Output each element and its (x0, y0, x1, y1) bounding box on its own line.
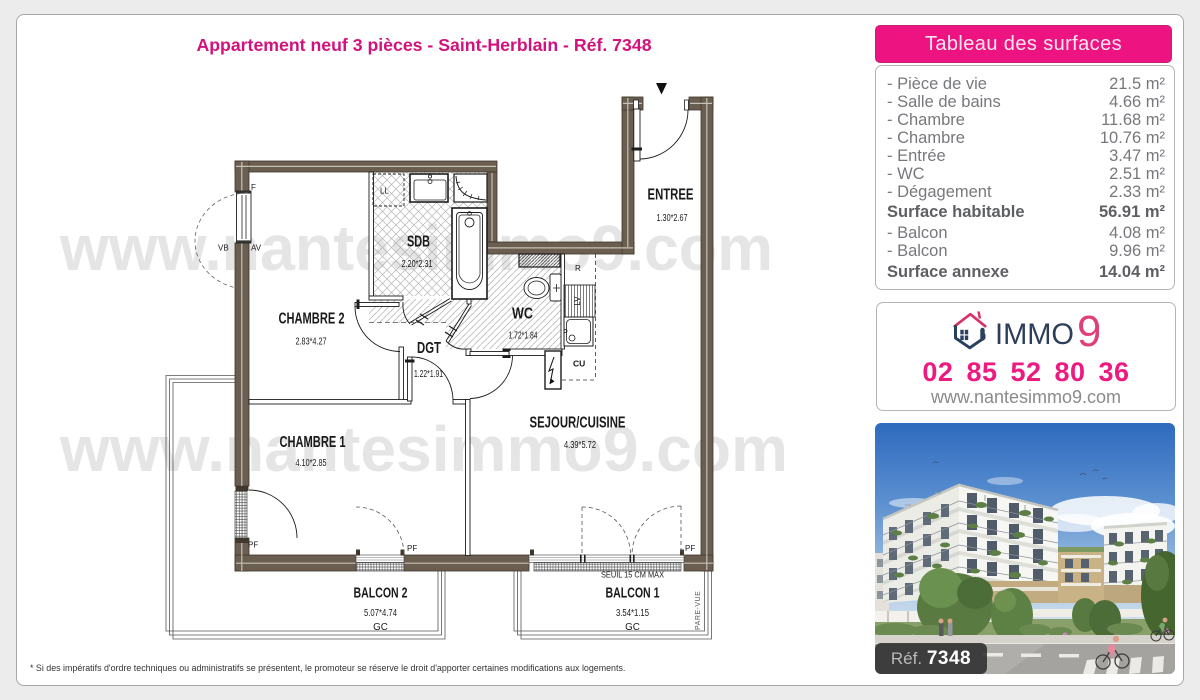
svg-text:CHAMBRE 2: CHAMBRE 2 (279, 311, 345, 328)
svg-text:SDB: SDB (407, 234, 430, 251)
svg-text:4.39*5.72: 4.39*5.72 (564, 440, 596, 451)
svg-text:2.20*2.31: 2.20*2.31 (402, 259, 433, 270)
svg-text:WC: WC (512, 306, 533, 323)
svg-text:PF: PF (407, 544, 417, 553)
svg-text:3.54*1.15: 3.54*1.15 (616, 608, 649, 619)
svg-text:AV: AV (251, 244, 262, 253)
svg-text:BALCON 1: BALCON 1 (606, 586, 660, 602)
svg-text:1.30*2.67: 1.30*2.67 (657, 213, 688, 224)
svg-text:PARE-VUE: PARE-VUE (695, 591, 702, 630)
svg-text:1.22*1.91: 1.22*1.91 (414, 369, 443, 380)
svg-text:SEJOUR/CUISINE: SEJOUR/CUISINE (530, 415, 626, 432)
svg-text:DGT: DGT (417, 340, 441, 357)
svg-text:BALCON 2: BALCON 2 (354, 586, 408, 602)
svg-text:R: R (575, 264, 581, 273)
svg-text:IMMO: IMMO (995, 318, 1074, 351)
svg-text:GC: GC (373, 622, 388, 633)
svg-text:SEUIL 15 CM MAX: SEUIL 15 CM MAX (601, 571, 665, 580)
svg-text:VB: VB (218, 244, 229, 253)
svg-text:CU: CU (573, 359, 585, 369)
svg-text:LL: LL (380, 187, 389, 196)
svg-text:ENTREE: ENTREE (648, 187, 694, 204)
svg-text:GC: GC (625, 622, 640, 633)
svg-text:2.83*4.27: 2.83*4.27 (296, 337, 327, 348)
svg-text:4.10*2.85: 4.10*2.85 (296, 458, 327, 469)
svg-text:PF: PF (248, 541, 258, 550)
svg-text:PF: PF (685, 544, 695, 553)
svg-text:LV: LV (573, 296, 582, 306)
svg-text:www.nantesimmo9.com: www.nantesimmo9.com (59, 413, 788, 485)
svg-text:CHAMBRE 1: CHAMBRE 1 (280, 434, 346, 451)
svg-text:1.72*1.84: 1.72*1.84 (509, 331, 538, 342)
svg-text:F: F (251, 183, 256, 192)
svg-text:5.07*4.74: 5.07*4.74 (364, 608, 397, 619)
svg-text:9: 9 (1077, 309, 1099, 355)
